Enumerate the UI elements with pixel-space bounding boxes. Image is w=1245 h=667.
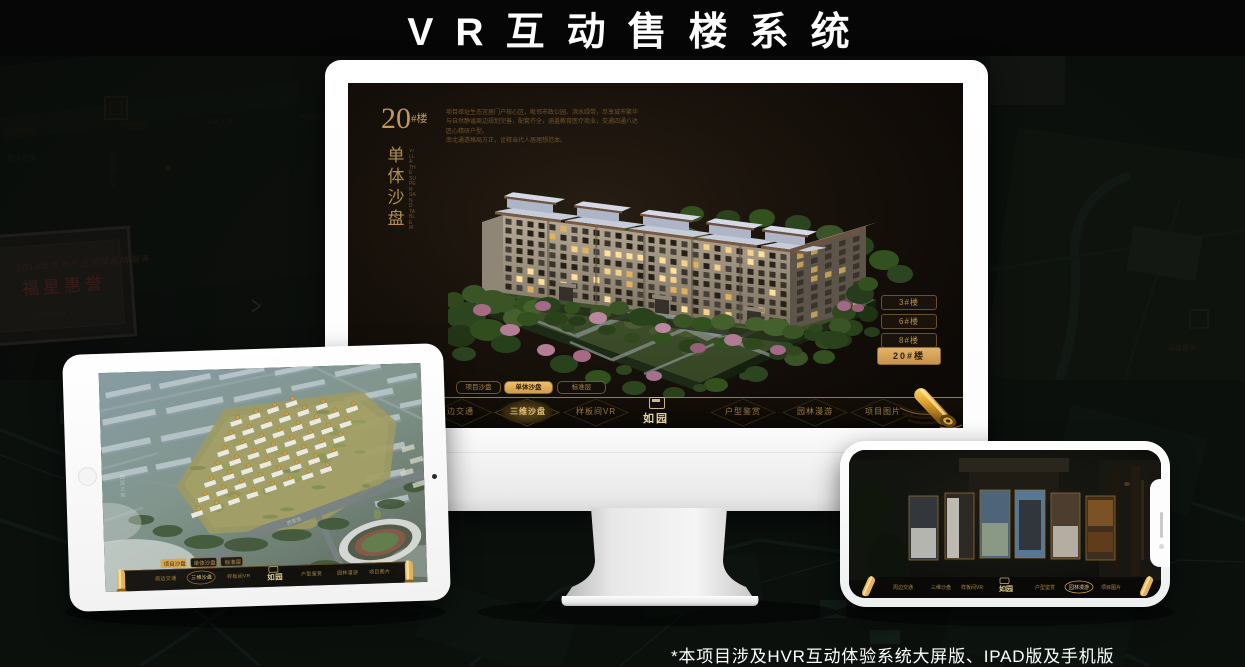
svg-text:西村南路: 西村南路 — [8, 126, 36, 135]
svg-text:项目图片: 项目图片 — [1101, 584, 1121, 591]
svg-text:福星惠誉: 福星惠誉 — [1168, 343, 1196, 352]
svg-text:项目图片: 项目图片 — [369, 568, 390, 576]
svg-text:中银西路: 中银西路 — [120, 121, 148, 130]
svg-text:古城南路: 古城南路 — [300, 113, 328, 122]
svg-text:园区三街: 园区三街 — [119, 474, 126, 499]
svg-text:周边交通: 周边交通 — [155, 575, 176, 583]
svg-text:户型鉴赏: 户型鉴赏 — [301, 570, 322, 578]
svg-text:园林漫游: 园林漫游 — [337, 569, 358, 577]
svg-text:样板间VR: 样板间VR — [961, 584, 983, 591]
svg-text:如园: 如园 — [267, 571, 283, 581]
svg-text:丰泽大道: 丰泽大道 — [205, 117, 233, 126]
svg-text:三维沙盘: 三维沙盘 — [191, 574, 212, 582]
svg-text:高新第六街: 高新第六街 — [110, 151, 118, 188]
svg-text:样板间VR: 样板间VR — [227, 572, 251, 580]
svg-text:临水东街: 临水东街 — [8, 153, 36, 162]
svg-text:三维沙盘: 三维沙盘 — [931, 584, 951, 591]
svg-text:园林漫游: 园林漫游 — [1069, 584, 1089, 591]
svg-text:如园: 如园 — [999, 584, 1013, 593]
svg-text:周边交通: 周边交通 — [893, 584, 913, 591]
svg-text:户型鉴赏: 户型鉴赏 — [1035, 584, 1055, 591]
